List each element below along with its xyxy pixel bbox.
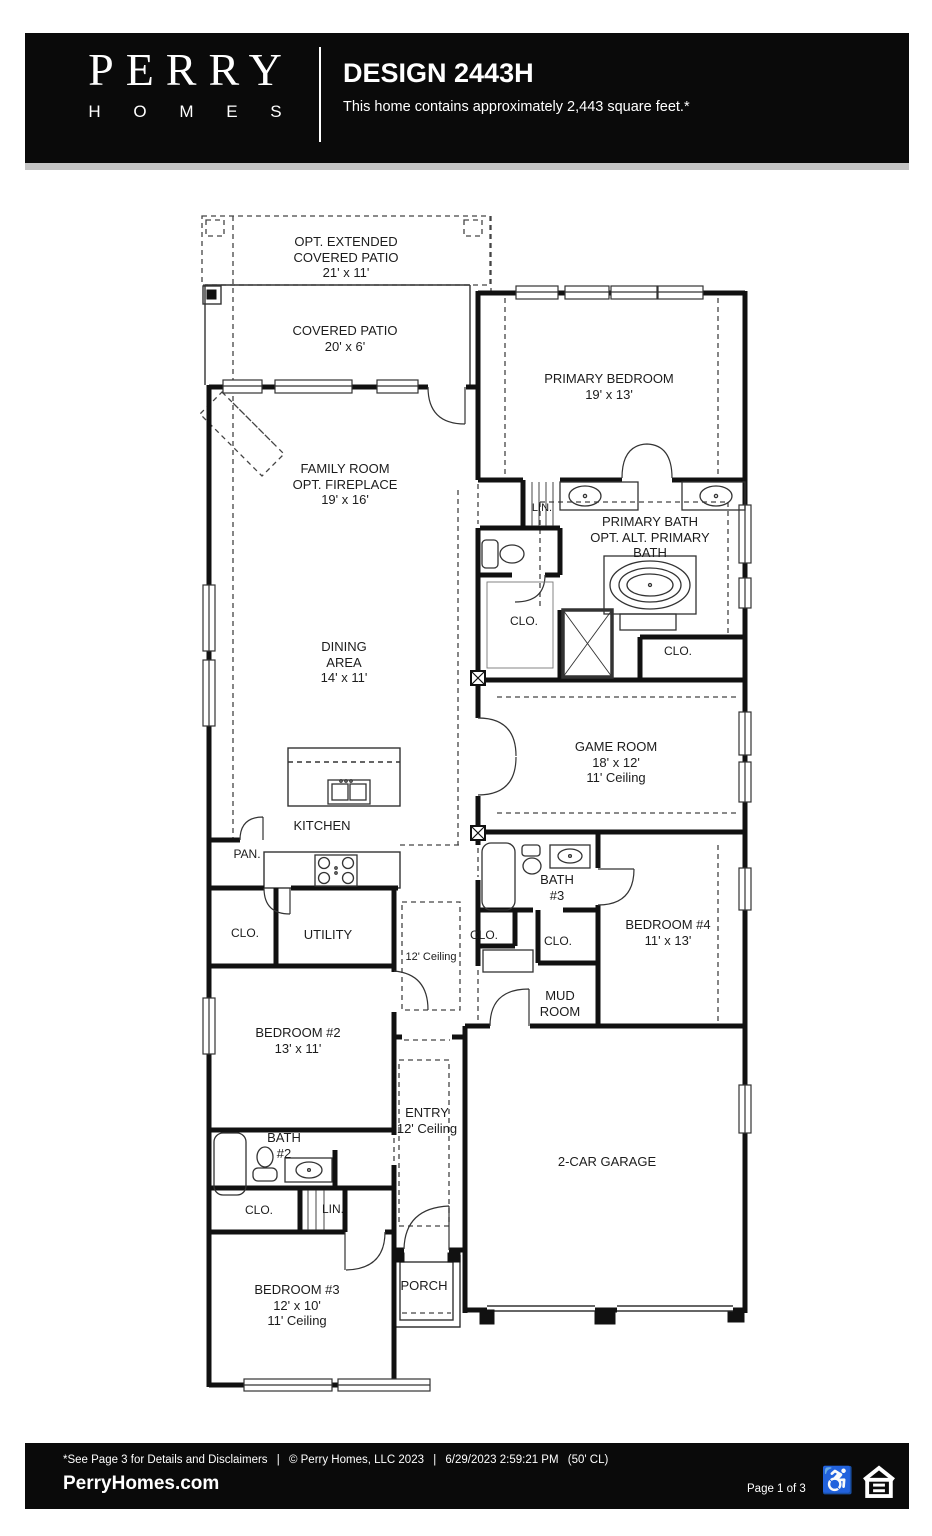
room-label-kitchen: KITCHEN [227,818,417,834]
header-bar: PERRY H O M E S DESIGN 2443H This home c… [25,33,909,163]
label-pantry: PAN. [212,847,282,863]
room-label-porch: PORCH [329,1278,519,1294]
label-closet-bedroom2: CLO. [224,1203,294,1219]
footer-website-link[interactable]: PerryHomes.com [63,1473,219,1495]
equal-housing-opportunity-icon [861,1465,897,1504]
logo-perry-text: PERRY [81,43,301,96]
room-label-covered-patio: COVERED PATIO 20' x 6' [250,323,440,354]
footer-copyright: © Perry Homes, LLC 2023 [289,1454,424,1466]
label-hall-ceiling: 12' Ceiling [386,950,476,966]
footer-pipe: | [277,1454,280,1466]
floor-plan-page: OPT. EXTENDED COVERED PATIO 21' x 11' CO… [0,0,932,1536]
header-divider [319,47,321,142]
footer-disclaimer: *See Page 3 for Details and Disclaimers [63,1454,268,1466]
footer-page-number: Page 1 of 3 [747,1483,806,1495]
label-closet-primary-left: CLO. [489,614,559,630]
footer-lot-code: (50' CL) [568,1454,609,1466]
wheelchair-accessible-icon: ♿ [821,1467,853,1493]
room-label-game-room: GAME ROOM 18' x 12' 11' Ceiling [521,739,711,786]
room-label-bedroom-4: BEDROOM #4 11' x 13' [573,917,763,948]
footer-disclaimer-line: *See Page 3 for Details and Disclaimers … [63,1454,614,1466]
footer-pipe: | [433,1454,436,1466]
label-closet-primary-right: CLO. [643,644,713,660]
label-linen-bedroom2: LIN. [298,1202,368,1218]
floor-plan-drawing [0,0,932,1536]
room-label-primary-bedroom: PRIMARY BEDROOM 19' x 13' [514,371,704,402]
room-label-mud-room: MUD ROOM [465,988,655,1019]
room-label-bath-2: BATH #2 [189,1130,379,1161]
logo-homes-text: H O M E S [83,102,301,122]
page-subtitle: This home contains approximately 2,443 s… [343,99,690,115]
thin-outlines [203,285,733,1327]
header-separator [25,163,909,170]
room-label-bedroom-2: BEDROOM #2 13' x 11' [203,1025,393,1056]
perry-homes-logo: PERRY H O M E S [71,43,301,122]
label-closet-utility: CLO. [210,926,280,942]
room-label-opt-extended-patio: OPT. EXTENDED COVERED PATIO 21' x 11' [251,234,441,281]
room-label-garage: 2-CAR GARAGE [512,1154,702,1170]
footer-bar: *See Page 3 for Details and Disclaimers … [25,1443,909,1509]
room-label-family-room: FAMILY ROOM OPT. FIREPLACE 19' x 16' [250,461,440,508]
room-label-bath-3: BATH #3 [462,872,652,903]
label-closet-hall-left: CLO. [449,928,519,944]
footer-timestamp: 6/29/2023 2:59:21 PM [445,1454,558,1466]
page-title: DESIGN 2443H [343,58,534,89]
room-label-dining-area: DINING AREA 14' x 11' [249,639,439,686]
room-label-primary-bath: PRIMARY BATH OPT. ALT. PRIMARY BATH [555,514,745,561]
